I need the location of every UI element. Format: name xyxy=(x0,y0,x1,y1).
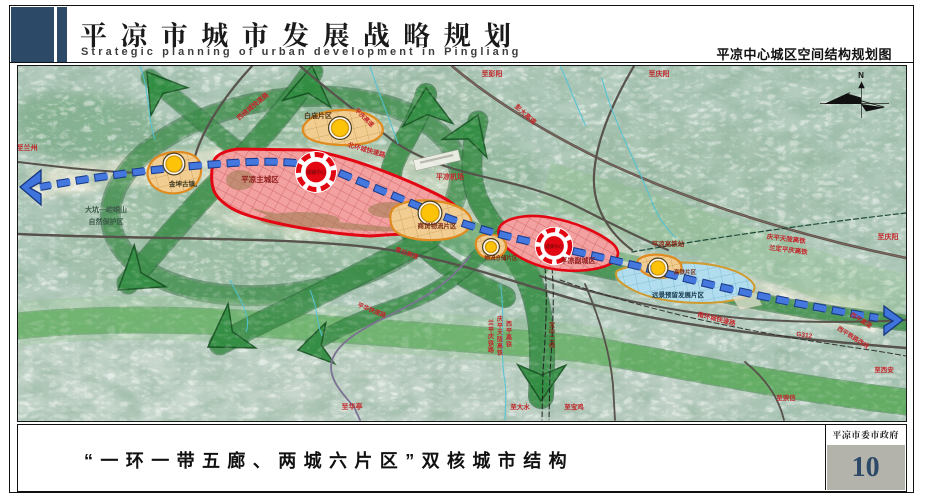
svg-text:庆: 庆 xyxy=(486,332,493,340)
svg-text:至庆阳: 至庆阳 xyxy=(648,69,669,78)
svg-text:至华亭: 至华亭 xyxy=(341,402,362,411)
svg-text:铁: 铁 xyxy=(505,340,511,348)
svg-text:兰: 兰 xyxy=(487,319,493,327)
svg-text:物流仓储片区: 物流仓储片区 xyxy=(484,254,518,262)
svg-text:大坑—崆峒山: 大坑—崆峒山 xyxy=(85,205,127,214)
svg-text:至庆阳: 至庆阳 xyxy=(877,232,898,241)
svg-text:陇: 陇 xyxy=(496,335,502,343)
svg-text:自然保护区: 自然保护区 xyxy=(88,217,123,226)
svg-text:城镇中心: 城镇中心 xyxy=(545,242,563,249)
svg-text:中: 中 xyxy=(548,327,554,335)
svg-text:平凉主城区: 平凉主城区 xyxy=(241,174,279,184)
svg-text:至西安: 至西安 xyxy=(874,365,894,374)
svg-text:天: 天 xyxy=(496,329,502,336)
svg-text:至彭阳: 至彭阳 xyxy=(481,69,502,78)
svg-text:白庙片区: 白庙片区 xyxy=(304,111,332,120)
svg-text:N: N xyxy=(858,71,864,80)
svg-text:平: 平 xyxy=(505,327,511,334)
svg-text:至大水: 至大水 xyxy=(510,402,530,411)
svg-text:平: 平 xyxy=(496,322,502,329)
svg-text:金坤古镇: 金坤古镇 xyxy=(168,179,196,188)
svg-text:至崇信: 至崇信 xyxy=(776,393,796,402)
svg-text:庆: 庆 xyxy=(495,315,502,323)
svg-text:宝: 宝 xyxy=(548,321,554,329)
svg-text:至宝鸡: 至宝鸡 xyxy=(564,402,584,411)
svg-text:高: 高 xyxy=(496,342,502,350)
svg-text:远景预留发展片区: 远景预留发展片区 xyxy=(652,290,705,299)
svg-text:线: 线 xyxy=(548,341,554,349)
svg-text:二: 二 xyxy=(548,335,554,342)
svg-text:铁: 铁 xyxy=(487,339,493,347)
svg-text:城镇中心: 城镇中心 xyxy=(305,168,325,175)
svg-text:路: 路 xyxy=(487,346,494,354)
svg-text:平凉高铁站: 平凉高铁站 xyxy=(651,239,684,248)
svg-text:商贸物流片区: 商贸物流片区 xyxy=(417,221,457,230)
svg-text:平: 平 xyxy=(487,326,493,333)
svg-text:平凉副城区: 平凉副城区 xyxy=(560,256,595,265)
svg-text:西: 西 xyxy=(505,320,511,328)
svg-text:高铁片区: 高铁片区 xyxy=(673,268,696,276)
svg-text:铁: 铁 xyxy=(496,349,502,357)
svg-text:至兰州: 至兰州 xyxy=(18,143,38,152)
svg-text:平凉机场: 平凉机场 xyxy=(436,172,464,181)
svg-text:高: 高 xyxy=(505,333,511,341)
